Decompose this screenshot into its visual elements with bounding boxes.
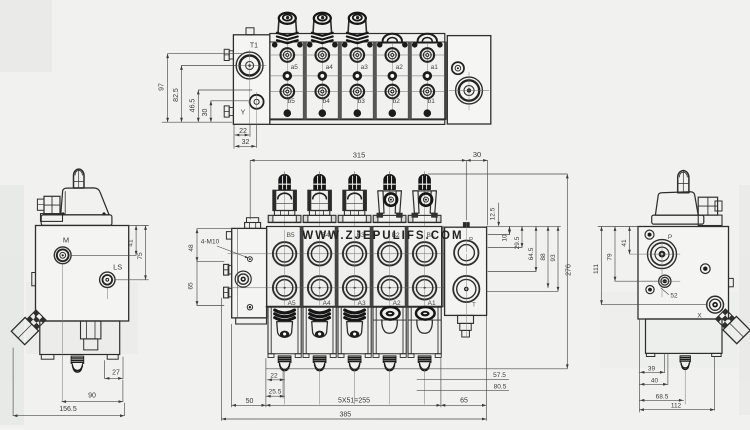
svg-text:22: 22: [239, 128, 247, 135]
svg-text:A3: A3: [358, 300, 366, 307]
svg-text:12.5: 12.5: [490, 207, 497, 220]
svg-text:b3: b3: [358, 98, 366, 105]
svg-text:52: 52: [670, 293, 678, 300]
svg-text:A4: A4: [323, 300, 331, 307]
svg-text:57.5: 57.5: [493, 372, 506, 379]
svg-text:22: 22: [270, 373, 278, 380]
svg-text:79: 79: [607, 253, 614, 261]
svg-text:64.5: 64.5: [528, 247, 535, 260]
svg-text:T1: T1: [250, 43, 258, 50]
svg-text:48: 48: [188, 244, 195, 252]
svg-text:82.5: 82.5: [173, 88, 180, 102]
svg-text:T: T: [472, 303, 476, 309]
svg-text:B5: B5: [287, 232, 295, 239]
svg-text:b4: b4: [323, 98, 331, 105]
svg-text:A2: A2: [393, 300, 401, 307]
svg-text:65: 65: [188, 282, 195, 290]
svg-text:41: 41: [128, 239, 135, 247]
svg-text:b2: b2: [393, 98, 401, 105]
svg-text:97: 97: [158, 83, 165, 91]
svg-text:a4: a4: [326, 64, 334, 71]
svg-text:LS: LS: [113, 263, 122, 272]
svg-text:385: 385: [339, 412, 351, 419]
svg-text:315: 315: [353, 151, 366, 160]
svg-text:WWW.ZJEPULIFS.COM: WWW.ZJEPULIFS.COM: [302, 230, 463, 242]
svg-text:40: 40: [651, 378, 659, 385]
svg-text:46.5: 46.5: [189, 99, 196, 113]
svg-text:a3: a3: [361, 64, 369, 71]
svg-text:50: 50: [246, 398, 254, 405]
svg-text:A1: A1: [428, 300, 436, 307]
svg-text:P: P: [668, 234, 672, 241]
svg-text:27: 27: [112, 370, 120, 377]
svg-text:75: 75: [137, 252, 144, 260]
svg-text:68.5: 68.5: [656, 394, 669, 401]
svg-text:A5: A5: [288, 300, 296, 307]
svg-text:a2: a2: [396, 64, 404, 71]
svg-text:93: 93: [550, 254, 557, 262]
svg-text:4-M10: 4-M10: [201, 239, 220, 246]
svg-text:M: M: [63, 236, 69, 245]
svg-text:39: 39: [648, 366, 656, 373]
svg-text:a5: a5: [291, 64, 299, 71]
svg-text:30: 30: [202, 109, 209, 117]
svg-text:30: 30: [473, 150, 481, 159]
svg-text:b5: b5: [288, 98, 296, 105]
svg-text:32: 32: [242, 139, 250, 146]
svg-text:a1: a1: [431, 64, 439, 71]
svg-text:276: 276: [566, 264, 573, 276]
svg-text:5X51=255: 5X51=255: [338, 398, 370, 405]
svg-text:b1: b1: [428, 98, 436, 105]
svg-text:112: 112: [671, 403, 682, 410]
svg-text:156.5: 156.5: [59, 406, 77, 413]
svg-text:X: X: [697, 313, 702, 320]
svg-text:80.5: 80.5: [494, 384, 507, 391]
svg-text:88: 88: [540, 253, 547, 261]
svg-text:10: 10: [502, 234, 509, 242]
svg-text:41: 41: [621, 239, 628, 247]
svg-text:P: P: [469, 238, 473, 244]
svg-text:90: 90: [88, 393, 96, 400]
svg-text:25.5: 25.5: [269, 389, 282, 396]
svg-text:65: 65: [460, 398, 468, 405]
svg-text:111: 111: [593, 264, 600, 274]
svg-text:Y: Y: [241, 109, 246, 116]
